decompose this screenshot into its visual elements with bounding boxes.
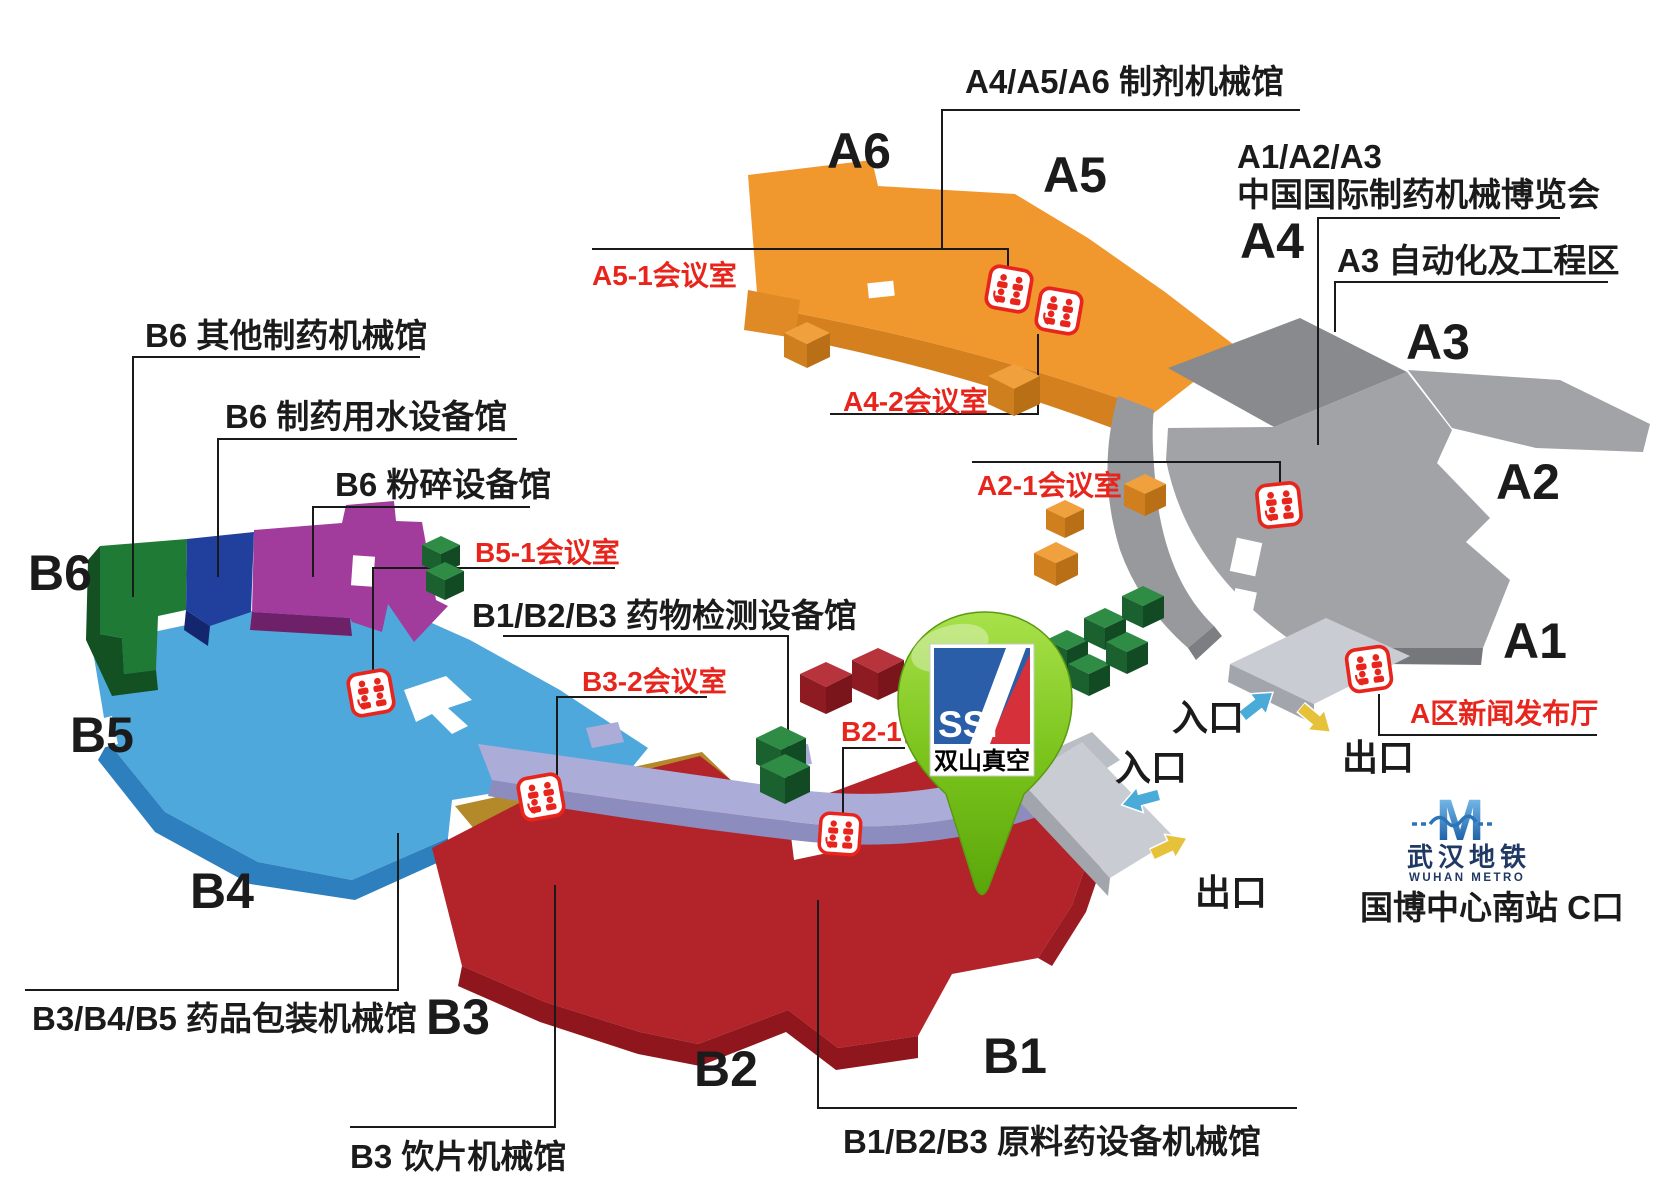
label-b6-crush: B6 粉碎设备馆 — [335, 466, 551, 503]
entrance-label: 入口 — [1115, 747, 1187, 788]
label-a3-zone: A3 自动化及工程区 — [1337, 242, 1619, 279]
exit-label: 出口 — [1195, 872, 1267, 913]
red-booth-cubes — [800, 648, 904, 714]
room-label-b51: B5-1会议室 — [475, 536, 620, 568]
pin-company-name: 双山真空 — [934, 747, 1030, 775]
label-a123-line1: A1/A2/A3 — [1237, 138, 1382, 175]
hall-a2-window — [1229, 588, 1257, 622]
label-b6-water: B6 制药用水设备馆 — [225, 398, 507, 435]
entrance-label: 入口 — [1172, 697, 1244, 738]
hall-label-a1: A1 — [1503, 613, 1567, 669]
leader-a3zone — [1335, 282, 1608, 332]
hall-label-b3: B3 — [426, 989, 490, 1045]
meeting-room-icon-a42 — [1035, 287, 1083, 335]
expo-floor-map: A4/A5/A6 制剂机械馆 A1/A2/A3 中国国际制药机械博览会 A3 自… — [0, 0, 1653, 1181]
hall-label-b6: B6 — [28, 545, 92, 601]
hall-label-a3: A3 — [1406, 314, 1470, 370]
metro-name-cn: 武汉地铁 — [1407, 842, 1531, 872]
label-b123-test: B1/B2/B3 药物检测设备馆 — [472, 597, 857, 634]
hall-b6-darkblue-shape — [186, 532, 254, 626]
meeting-room-icon-a51 — [985, 265, 1033, 313]
metro-station-label: 国博中心南站 C口 — [1360, 889, 1624, 926]
hall-label-a6: A6 — [827, 123, 891, 179]
label-a123-line2: 中国国际制药机械博览会 — [1237, 176, 1600, 213]
meeting-room-icon-a-press — [1345, 645, 1392, 692]
hall-label-a5: A5 — [1043, 147, 1107, 203]
meeting-room-icon-b21 — [819, 813, 862, 856]
pin-logo-acronym: SSI — [938, 704, 998, 745]
hall-b6-purple-notch — [351, 555, 375, 586]
metro-logo: M 武汉地铁 WUHAN METRO — [1407, 788, 1531, 884]
green-booth-cubes-b2 — [756, 726, 810, 804]
room-label-a42: A4-2会议室 — [843, 385, 988, 417]
meeting-room-icon-a21 — [1256, 482, 1302, 528]
exit-label: 出口 — [1342, 737, 1414, 778]
hall-a5-notch — [867, 281, 894, 299]
meeting-room-icon-b51 — [347, 669, 395, 717]
room-label-b32: B3-2会议室 — [582, 665, 727, 697]
room-label-a-press: A区新闻发布厅 — [1410, 697, 1598, 729]
label-b3-slice: B3 饮片机械馆 — [350, 1138, 566, 1175]
hall-label-b2: B2 — [694, 1041, 758, 1097]
hall-label-b1: B1 — [983, 1028, 1047, 1084]
label-a456: A4/A5/A6 制剂机械馆 — [965, 63, 1284, 100]
meeting-room-icon-b32 — [517, 773, 565, 821]
hall-label-b5: B5 — [70, 707, 134, 763]
label-b6-other: B6 其他制药机械馆 — [145, 317, 427, 354]
hall-label-a2: A2 — [1496, 454, 1560, 510]
metro-name-en: WUHAN METRO — [1409, 872, 1525, 884]
label-b345-pack: B3/B4/B5 药品包装机械馆 — [32, 1000, 417, 1037]
hall-label-a4: A4 — [1240, 213, 1304, 269]
hall-label-b4: B4 — [190, 863, 254, 919]
label-b123-api: B1/B2/B3 原料药设备机械馆 — [843, 1123, 1261, 1160]
room-label-a21: A2-1会议室 — [977, 469, 1122, 501]
room-label-a51: A5-1会议室 — [592, 259, 737, 291]
